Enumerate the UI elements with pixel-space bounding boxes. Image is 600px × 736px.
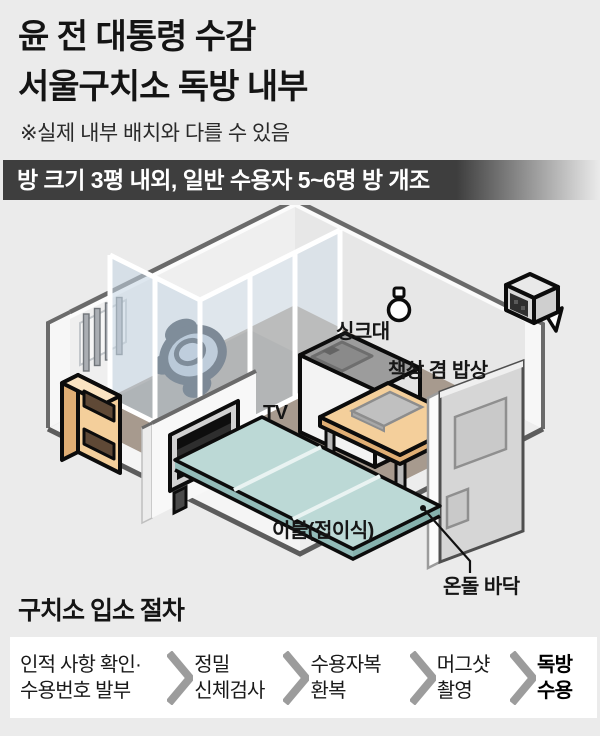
- procedure-box: 인적 사항 확인· 수용번호 발부 정밀 신체검사 수용자복 환복 머그샷 촬영…: [10, 637, 597, 718]
- label-blanket: 이불(접이식): [272, 519, 374, 542]
- chevron-right-icon: [410, 651, 436, 705]
- info-banner: 방 크기 3평 내외, 일반 수용자 5~6명 방 개조: [3, 160, 600, 200]
- chevron-right-icon: [283, 651, 309, 705]
- room-illustration: 싱크대 책상 겸 밥상 TV 이불(접이식) 온돌 바닥: [0, 205, 600, 600]
- procedure-step: 수용자복 환복: [311, 652, 409, 704]
- chevron-right-icon: [510, 651, 536, 705]
- page-title: 윤 전 대통령 수감 서울구치소 독방 내부: [18, 12, 307, 112]
- label-floor: 온돌 바닥: [443, 575, 521, 598]
- page-title-line1: 윤 전 대통령 수감: [18, 12, 307, 62]
- label-desk: 책상 겸 밥상: [388, 359, 489, 382]
- door: [428, 361, 523, 568]
- procedure-step: 머그샷 촬영: [437, 652, 509, 704]
- procedure-step-final: 독방 수용: [537, 652, 587, 704]
- label-sink: 싱크대: [336, 320, 390, 343]
- shelf: [62, 375, 120, 473]
- chevron-right-icon: [167, 651, 193, 705]
- label-tv: TV: [263, 402, 289, 424]
- procedure-step: 인적 사항 확인· 수용번호 발부: [20, 652, 166, 704]
- page-title-line2: 서울구치소 독방 내부: [18, 62, 307, 112]
- disclaimer-note: ※실제 내부 배치와 다를 수 있음: [20, 117, 290, 147]
- procedure-heading: 구치소 입소 절차: [18, 591, 184, 627]
- procedure-step: 정밀 신체검사: [194, 652, 282, 704]
